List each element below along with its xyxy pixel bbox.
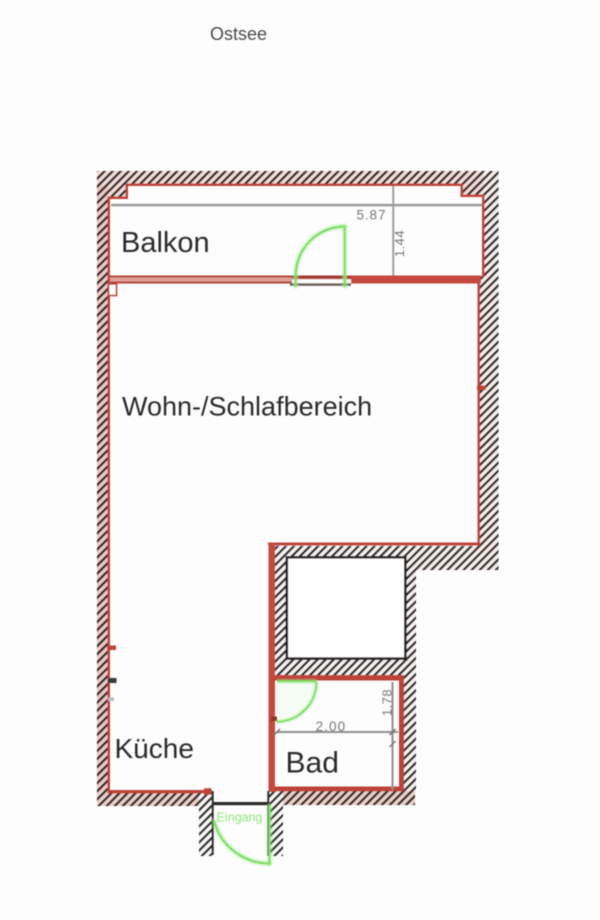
svg-text:5.87: 5.87 — [357, 208, 387, 223]
svg-text:Wohn-/Schlafbereich: Wohn-/Schlafbereich — [122, 392, 372, 422]
svg-text:1.44: 1.44 — [392, 230, 407, 257]
svg-text:Eingang: Eingang — [217, 811, 263, 825]
svg-text:Küche: Küche — [115, 733, 194, 764]
svg-text:1.78: 1.78 — [380, 689, 395, 716]
svg-text:2.00: 2.00 — [316, 719, 347, 734]
svg-text:Balkon: Balkon — [121, 227, 210, 259]
svg-text:Bad: Bad — [286, 747, 339, 780]
svg-text:Ostsee: Ostsee — [210, 24, 267, 44]
